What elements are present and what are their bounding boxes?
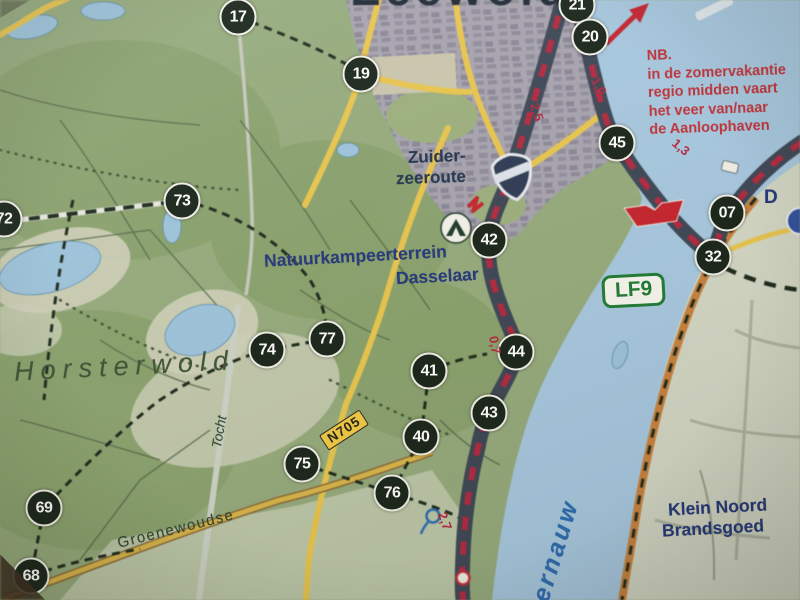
route-name-line2: zeeroute	[396, 168, 467, 189]
place-name-fragment: D	[764, 188, 778, 209]
lf-route-badge: LF9	[601, 272, 666, 308]
junction-marker-17: 17	[220, 0, 257, 36]
paper-cycling-map-photo: Zeewolde NB. in de zomervakantie regio m…	[0, 0, 800, 600]
junction-marker-68: 68	[13, 558, 50, 595]
junction-marker-43: 43	[471, 395, 508, 432]
route-name-line1: Zuider-	[408, 147, 466, 168]
junction-marker-69: 69	[26, 490, 63, 527]
distance-label-0,7: 0,7	[486, 335, 504, 355]
junction-marker-42: 42	[471, 222, 508, 259]
poi-dot	[457, 572, 470, 585]
junction-marker-07: 07	[709, 195, 746, 232]
junction-marker-41: 41	[411, 353, 448, 390]
junction-marker-45: 45	[599, 125, 636, 162]
junction-marker-76: 76	[374, 475, 411, 512]
junction-marker-40: 40	[403, 419, 440, 456]
junction-marker-19: 19	[343, 56, 380, 93]
junction-marker-77: 77	[309, 321, 346, 358]
junction-marker-32: 32	[695, 239, 732, 276]
map-note: NB. in de zomervakantie regio midden vaa…	[646, 41, 800, 140]
junction-marker-75: 75	[284, 446, 321, 483]
junction-marker-74: 74	[249, 332, 286, 369]
junction-marker-20: 20	[572, 19, 609, 56]
junction-marker-73: 73	[164, 183, 201, 220]
